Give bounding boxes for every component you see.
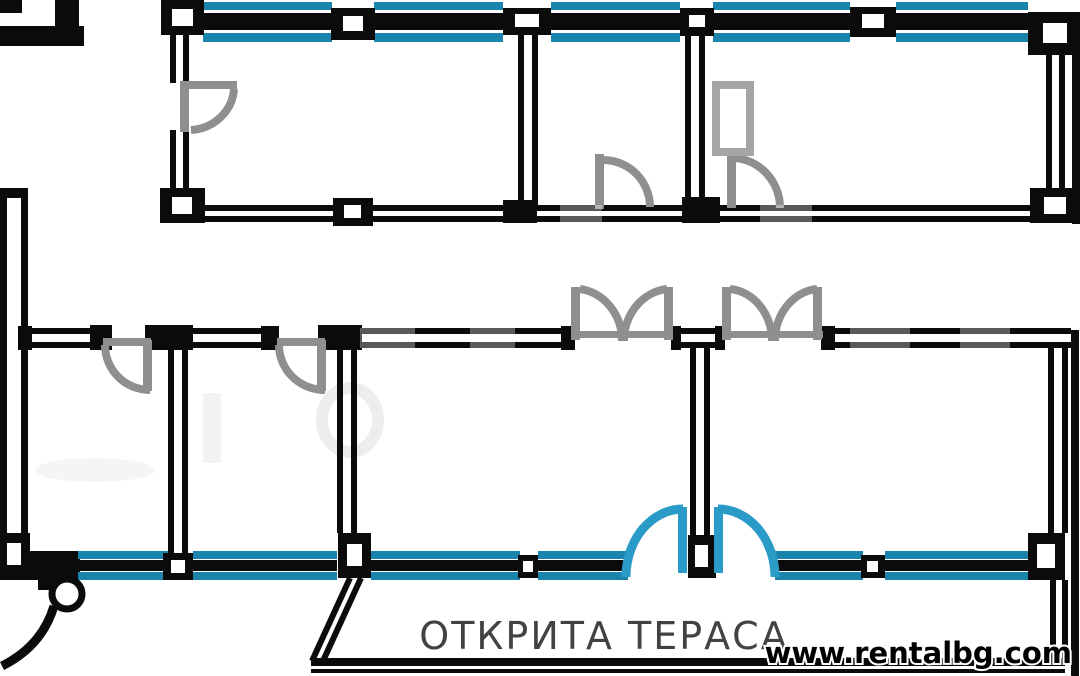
wall-segment — [182, 216, 1080, 222]
curved-step-arc — [2, 606, 54, 666]
wall-segment — [337, 348, 343, 533]
wall-segment — [182, 205, 1080, 211]
lower-wing — [0, 188, 1079, 676]
wall-segment — [1071, 330, 1079, 676]
ghost-letter — [203, 393, 221, 463]
double-door-icon — [722, 287, 823, 341]
wall-segment — [1062, 348, 1068, 533]
ghost-letter — [322, 388, 378, 452]
terrace-door-icon — [714, 507, 775, 577]
window-strip — [713, 2, 850, 42]
window-strip — [371, 551, 520, 580]
wall-segment — [0, 0, 22, 13]
upper-wing-partitions — [518, 30, 705, 205]
door-icon — [180, 81, 237, 132]
door-pivot-circle — [52, 579, 82, 609]
window-strip — [374, 2, 503, 42]
duct-shaft — [716, 85, 750, 152]
upper-wing — [160, 0, 1080, 226]
scan-artifact — [560, 205, 602, 222]
ghost-smudge — [35, 458, 155, 482]
wall-segment — [699, 34, 705, 205]
wall-segment — [21, 196, 28, 536]
scan-artifact — [850, 328, 910, 348]
wall-jamb — [821, 326, 835, 350]
upper-wing-bottom-wall — [160, 188, 1080, 226]
exterior-curved-step — [2, 578, 82, 666]
wall-segment — [183, 33, 189, 83]
wall-segment — [518, 30, 524, 205]
wall-segment — [690, 348, 696, 535]
window-strip — [203, 2, 332, 42]
wall-segment — [685, 34, 691, 205]
lower-wing-partitions — [168, 348, 710, 555]
door-icon — [727, 152, 780, 208]
scan-artifact — [360, 328, 415, 348]
door-icon — [103, 338, 152, 391]
site-watermark: www.rentalbg.com — [765, 636, 1072, 670]
wall-jamb — [18, 326, 32, 350]
window-strip — [551, 2, 680, 42]
window-strip — [78, 551, 168, 580]
wall-segment — [170, 33, 176, 83]
terrace-door-icon — [626, 507, 687, 577]
scan-artifact — [470, 328, 515, 348]
wall-segment — [0, 26, 84, 46]
neighbor-wall-fragment — [0, 0, 84, 46]
wall-segment — [183, 130, 189, 190]
window-strip — [193, 551, 337, 580]
wall-segment — [1046, 53, 1052, 190]
terrace-window-band — [0, 533, 1065, 580]
wall-segment — [182, 348, 188, 555]
door-icon — [595, 154, 650, 209]
scan-artifact — [760, 205, 812, 222]
lower-wing-top-wall — [18, 325, 1071, 350]
wall-segment — [170, 130, 176, 190]
facade-window-band — [203, 2, 1028, 42]
wall-segment — [1048, 348, 1054, 533]
window-strip — [896, 2, 1028, 42]
wall-segment — [0, 196, 7, 536]
watermark-ghosts — [35, 388, 378, 482]
wall-segment — [1059, 53, 1065, 190]
window-strip — [775, 551, 863, 580]
floor-plan-page: ОТКРИТА ТЕРАСА www.rentalbg.com — [0, 0, 1080, 676]
wall-segment — [168, 348, 174, 555]
floor-plan-drawing: ОТКРИТА ТЕРАСА www.rentalbg.com — [0, 0, 1080, 676]
wall-segment — [351, 348, 357, 533]
wall-segment — [1072, 14, 1080, 224]
window-strip — [885, 551, 1028, 580]
scan-artifact — [960, 328, 1010, 348]
window-strip — [538, 551, 628, 580]
double-door-icon — [571, 287, 673, 341]
door-icon — [277, 338, 326, 391]
lower-wing-right-wall — [1048, 330, 1079, 676]
wall-segment — [532, 30, 538, 205]
open-terrace-label: ОТКРИТА ТЕРАСА — [419, 614, 788, 658]
wall-segment — [704, 348, 710, 535]
wall-jamb — [145, 325, 193, 350]
lower-wing-left-wall — [0, 188, 28, 536]
